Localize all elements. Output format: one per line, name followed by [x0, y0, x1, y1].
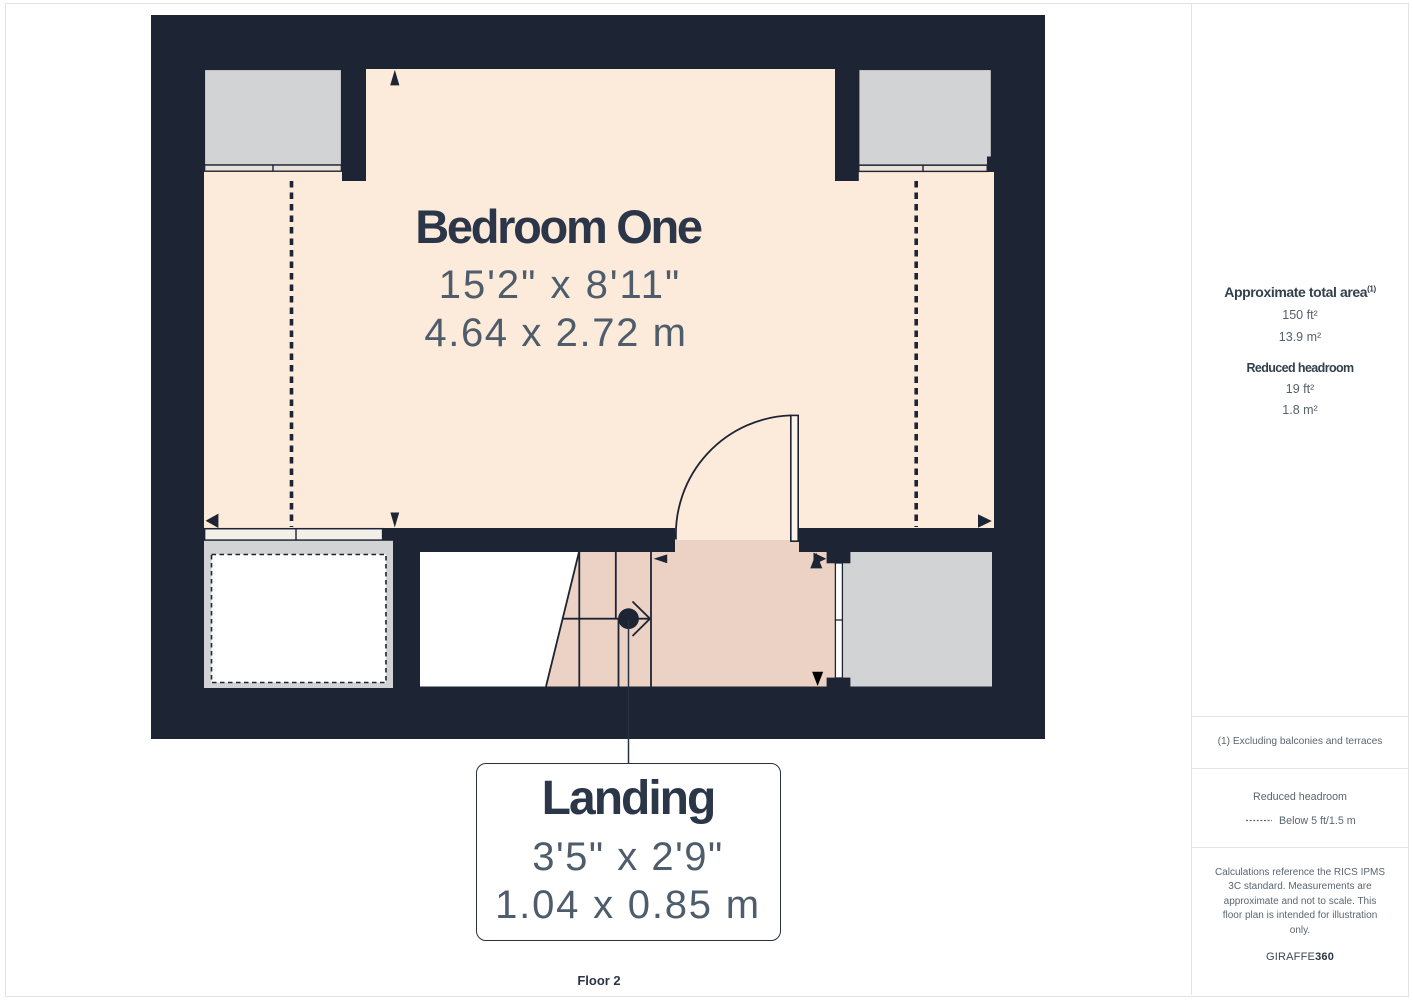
svg-text:Below 5 ft/1.5 m: Below 5 ft/1.5 m: [1279, 815, 1356, 827]
